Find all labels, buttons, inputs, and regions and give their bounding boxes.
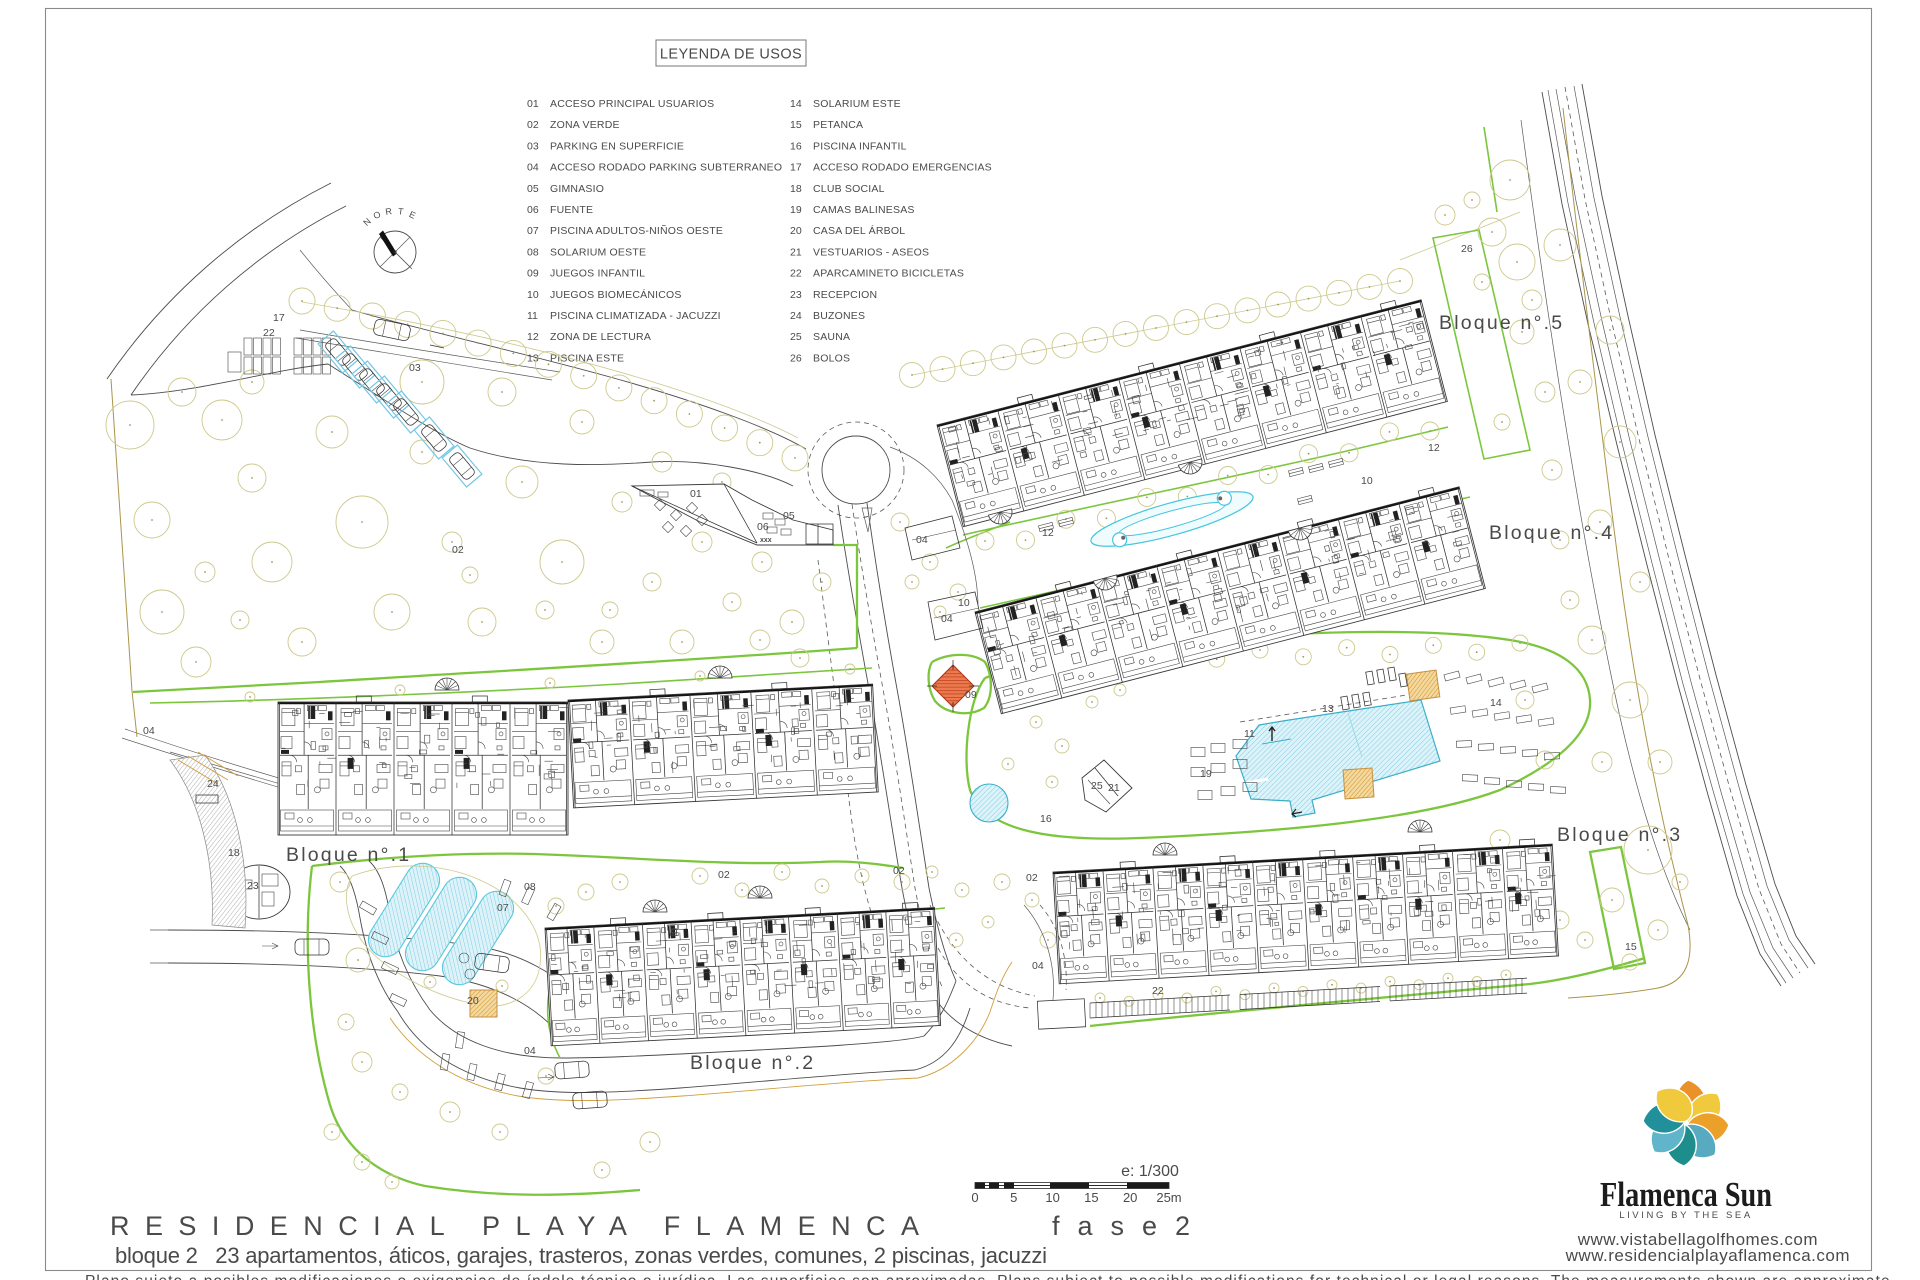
svg-text:Bloque n°.4: Bloque n°.4 bbox=[1489, 522, 1614, 544]
svg-text:PARKING EN SUPERFICIE: PARKING EN SUPERFICIE bbox=[550, 140, 684, 152]
svg-text:SAUNA: SAUNA bbox=[813, 331, 850, 343]
svg-text:APARCAMINETO BICICLETAS: APARCAMINETO BICICLETAS bbox=[813, 268, 964, 280]
svg-text:23: 23 bbox=[790, 289, 802, 301]
svg-text:13: 13 bbox=[1322, 703, 1334, 715]
svg-text:03: 03 bbox=[527, 140, 539, 152]
svg-text:17: 17 bbox=[273, 312, 285, 324]
svg-text:04: 04 bbox=[941, 613, 953, 625]
svg-text:07: 07 bbox=[527, 225, 539, 237]
svg-text:PISCINA INFANTIL: PISCINA INFANTIL bbox=[813, 140, 907, 152]
svg-text:GIMNASIO: GIMNASIO bbox=[550, 183, 604, 195]
svg-text:PISCINA ADULTOS-NIÑOS OESTE: PISCINA ADULTOS-NIÑOS OESTE bbox=[550, 224, 723, 237]
svg-text:JUEGOS INFANTIL: JUEGOS INFANTIL bbox=[550, 268, 645, 280]
svg-text:PISCINA CLIMATIZADA - JACUZZI: PISCINA CLIMATIZADA - JACUZZI bbox=[550, 310, 721, 322]
svg-text:02: 02 bbox=[893, 865, 905, 877]
svg-text:09: 09 bbox=[965, 689, 977, 701]
svg-text:Bloque n°.5: Bloque n°.5 bbox=[1439, 312, 1564, 334]
svg-text:26: 26 bbox=[1461, 243, 1473, 255]
svg-text:0: 0 bbox=[971, 1190, 978, 1205]
svg-text:06: 06 bbox=[527, 204, 539, 216]
svg-text:24: 24 bbox=[790, 310, 802, 322]
svg-text:01: 01 bbox=[690, 488, 702, 500]
svg-text:22: 22 bbox=[790, 268, 802, 280]
svg-text:12: 12 bbox=[1428, 442, 1440, 454]
svg-text:ACCESO PRINCIPAL USUARIOS: ACCESO PRINCIPAL USUARIOS bbox=[550, 98, 714, 110]
svg-text:08: 08 bbox=[527, 246, 539, 258]
svg-text:21: 21 bbox=[1108, 782, 1120, 794]
svg-text:03: 03 bbox=[409, 362, 421, 374]
svg-text:09: 09 bbox=[527, 268, 539, 280]
svg-text:FUENTE: FUENTE bbox=[550, 204, 593, 216]
svg-text:bloque 2 23 apartamentos, át: bloque 2 23 apartamentos, áticos, garaje… bbox=[115, 1243, 1047, 1268]
svg-text:20: 20 bbox=[1123, 1190, 1137, 1205]
svg-text:BUZONES: BUZONES bbox=[813, 310, 865, 322]
svg-text:10: 10 bbox=[958, 597, 970, 609]
svg-text:12: 12 bbox=[527, 331, 539, 343]
svg-text:PETANCA: PETANCA bbox=[813, 119, 863, 131]
svg-text:01: 01 bbox=[527, 98, 539, 110]
svg-text:SOLARIUM ESTE: SOLARIUM ESTE bbox=[813, 98, 901, 110]
svg-text:15: 15 bbox=[1625, 941, 1637, 953]
svg-text:18: 18 bbox=[228, 847, 240, 859]
svg-text:21: 21 bbox=[790, 246, 802, 258]
svg-text:10: 10 bbox=[1361, 475, 1373, 487]
svg-text:24: 24 bbox=[207, 778, 219, 790]
svg-text:5: 5 bbox=[1010, 1190, 1017, 1205]
svg-text:12: 12 bbox=[1042, 527, 1054, 539]
svg-text:Flamenca Sun: Flamenca Sun bbox=[1600, 1175, 1772, 1214]
svg-text:02: 02 bbox=[1026, 872, 1038, 884]
svg-text:19: 19 bbox=[1200, 768, 1212, 780]
svg-text:CLUB SOCIAL: CLUB SOCIAL bbox=[813, 183, 885, 195]
svg-text:02: 02 bbox=[527, 119, 539, 131]
svg-text:14: 14 bbox=[1490, 697, 1502, 709]
svg-text:15: 15 bbox=[1084, 1190, 1098, 1205]
svg-text:ZONA DE LECTURA: ZONA DE LECTURA bbox=[550, 331, 651, 343]
svg-text:JUEGOS BIOMECÁNICOS: JUEGOS BIOMECÁNICOS bbox=[550, 288, 682, 301]
svg-text:05: 05 bbox=[783, 510, 795, 522]
svg-text:11: 11 bbox=[527, 310, 538, 322]
svg-text:25: 25 bbox=[1091, 780, 1103, 792]
svg-text:15: 15 bbox=[790, 119, 802, 131]
svg-text:VESTUARIOS - ASEOS: VESTUARIOS - ASEOS bbox=[813, 246, 929, 258]
svg-text:CAMAS BALINESAS: CAMAS BALINESAS bbox=[813, 204, 915, 216]
svg-text:04: 04 bbox=[527, 162, 539, 174]
svg-text:19: 19 bbox=[790, 204, 802, 216]
svg-text:02: 02 bbox=[452, 544, 464, 556]
svg-text:LIVING BY THE SEA: LIVING BY THE SEA bbox=[1619, 1210, 1753, 1221]
svg-text:07: 07 bbox=[497, 902, 509, 914]
svg-text:04: 04 bbox=[524, 1045, 536, 1057]
svg-text:e: 1/300: e: 1/300 bbox=[1121, 1163, 1179, 1180]
svg-text:02: 02 bbox=[718, 869, 730, 881]
svg-text:www.residencialplayaflamenca.c: www.residencialplayaflamenca.com bbox=[1565, 1246, 1850, 1265]
svg-text:10: 10 bbox=[527, 289, 539, 301]
svg-text:20: 20 bbox=[467, 995, 479, 1007]
svg-text:08: 08 bbox=[524, 881, 536, 893]
svg-text:BOLOS: BOLOS bbox=[813, 352, 850, 364]
svg-text:25m: 25m bbox=[1156, 1190, 1181, 1205]
svg-text:ACCESO RODADO PARKING SUBTERRA: ACCESO RODADO PARKING SUBTERRANEO bbox=[550, 162, 782, 174]
svg-text:04: 04 bbox=[916, 534, 928, 546]
svg-text:06: 06 bbox=[757, 521, 769, 533]
svg-text:20: 20 bbox=[790, 225, 802, 237]
svg-text:14: 14 bbox=[790, 98, 802, 110]
svg-text:16: 16 bbox=[790, 140, 802, 152]
svg-text:SOLARIUM OESTE: SOLARIUM OESTE bbox=[550, 246, 646, 258]
svg-text:16: 16 bbox=[1040, 813, 1052, 825]
svg-text:22: 22 bbox=[1152, 985, 1164, 997]
svg-text:18: 18 bbox=[790, 183, 802, 195]
svg-text:ACCESO RODADO EMERGENCIAS: ACCESO RODADO EMERGENCIAS bbox=[813, 162, 992, 174]
svg-text:xxx: xxx bbox=[760, 537, 772, 544]
svg-text:11: 11 bbox=[1244, 728, 1255, 740]
svg-text:Bloque n°.1: Bloque n°.1 bbox=[286, 844, 411, 866]
svg-text:Bloque n°.2: Bloque n°.2 bbox=[690, 1052, 815, 1074]
svg-text:04: 04 bbox=[143, 725, 155, 737]
svg-text:RECEPCION: RECEPCION bbox=[813, 289, 877, 301]
svg-text:LEYENDA DE USOS: LEYENDA DE USOS bbox=[660, 47, 802, 63]
svg-text:17: 17 bbox=[790, 162, 802, 174]
svg-text:04: 04 bbox=[1032, 960, 1044, 972]
svg-text:05: 05 bbox=[527, 183, 539, 195]
svg-text:CASA DEL ÁRBOL: CASA DEL ÁRBOL bbox=[813, 224, 905, 237]
svg-text:Plano sujeto a posibles modifi: Plano sujeto a posibles modificaciones o… bbox=[85, 1273, 1895, 1280]
svg-text:23: 23 bbox=[247, 880, 259, 892]
svg-text:22: 22 bbox=[263, 327, 275, 339]
svg-text:26: 26 bbox=[790, 352, 802, 364]
svg-text:10: 10 bbox=[1045, 1190, 1059, 1205]
svg-text:Bloque n°.3: Bloque n°.3 bbox=[1557, 824, 1682, 846]
svg-text:25: 25 bbox=[790, 331, 802, 343]
svg-text:ZONA VERDE: ZONA VERDE bbox=[550, 119, 620, 131]
